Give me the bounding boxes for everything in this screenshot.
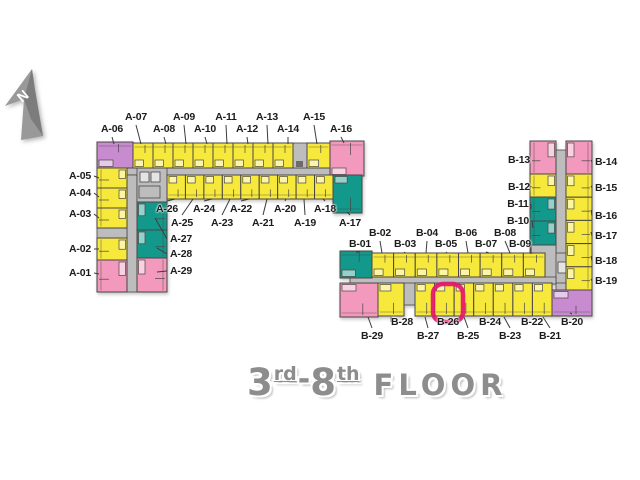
room-detail [99, 160, 113, 167]
floor-plan-screen: N A-01A-02A-03A-04A-05A-06A-07A-08A-09A-… [0, 0, 640, 480]
unit-label-b-01: B-01 [349, 238, 371, 250]
room-detail [568, 176, 575, 186]
leader-line-b-27 [425, 317, 428, 328]
room-detail [261, 177, 269, 184]
floor-from-suffix: rd [274, 363, 297, 385]
unit-label-b-05: B-05 [435, 238, 457, 250]
room-detail [476, 285, 484, 292]
room-detail [335, 177, 347, 184]
leader-line-a-23 [222, 199, 230, 215]
unit-label-a-26: A-26 [156, 203, 178, 215]
room-detail [504, 269, 513, 276]
room-detail [119, 210, 126, 218]
floor-range-dash: - [298, 362, 310, 397]
room-detail [417, 285, 425, 292]
corridor-core [404, 283, 415, 305]
unit-label-b-02: B-02 [369, 227, 391, 239]
room-detail [332, 168, 346, 175]
room-detail [534, 285, 542, 292]
shaft-icon [296, 161, 303, 167]
unit-label-a-07: A-07 [125, 111, 147, 123]
unit-label-b-20: B-20 [561, 316, 583, 328]
room-detail [380, 285, 391, 292]
leader-line-b-21 [543, 317, 550, 328]
room-detail [119, 190, 126, 198]
corridor-core [127, 175, 137, 292]
room-detail [119, 170, 126, 178]
room-detail [280, 177, 288, 184]
north-arrow: N [5, 69, 43, 140]
room-detail [461, 269, 470, 276]
floor-plan-svg: N [0, 0, 640, 480]
room-detail [342, 270, 355, 277]
unit-label-a-04: A-04 [69, 187, 91, 199]
room-detail [215, 160, 223, 167]
floor-from-number: 3 [247, 361, 273, 404]
room-detail [206, 177, 214, 184]
unit-label-b-25: B-25 [457, 330, 479, 342]
floor-to-suffix: th [337, 363, 360, 385]
leader-line-b-02 [380, 241, 382, 253]
unit-label-a-28: A-28 [170, 248, 192, 260]
room-detail [119, 262, 126, 275]
room-detail [175, 160, 183, 167]
room-detail [298, 177, 306, 184]
room-detail [568, 269, 575, 279]
unit-label-a-16: A-16 [330, 123, 352, 135]
room-detail [119, 240, 126, 249]
unit-label-a-19: A-19 [294, 217, 316, 229]
leader-line-b-06 [466, 241, 468, 253]
room-detail [548, 143, 555, 157]
unit-label-a-23: A-23 [211, 217, 233, 229]
unit-label-a-05: A-05 [69, 170, 91, 182]
unit-label-b-27: B-27 [417, 330, 439, 342]
unit-label-a-29: A-29 [170, 265, 192, 277]
unit-label-a-25: A-25 [171, 217, 193, 229]
unit-label-a-12: A-12 [236, 123, 258, 135]
room-detail [135, 160, 143, 167]
leader-line-a-09 [184, 125, 186, 144]
room-detail [548, 223, 555, 233]
room-detail [342, 285, 356, 292]
unit-label-b-17: B-17 [595, 230, 617, 242]
unit-label-a-27: A-27 [170, 233, 192, 245]
unit-label-a-02: A-02 [69, 243, 91, 255]
unit-label-b-15: B-15 [595, 182, 617, 194]
unit-label-b-06: B-06 [455, 227, 477, 239]
unit-label-b-11: B-11 [507, 198, 528, 210]
unit-label-a-21: A-21 [252, 217, 274, 229]
leader-line-a-25 [182, 199, 193, 215]
leader-line-a-13 [267, 125, 268, 144]
room-detail [224, 177, 232, 184]
unit-label-a-08: A-08 [153, 123, 175, 135]
room-detail [317, 177, 325, 184]
floor-title: 3rd-8thFLOOR [247, 361, 507, 404]
room-detail [187, 177, 195, 184]
leader-line-a-07 [136, 125, 141, 144]
unit-label-b-07: B-07 [475, 238, 497, 250]
room-detail [155, 160, 163, 167]
unit-label-a-13: A-13 [256, 111, 278, 123]
unit-label-b-16: B-16 [595, 210, 617, 222]
room-detail [495, 285, 503, 292]
floor-word: FLOOR [374, 368, 508, 402]
unit-label-b-22: B-22 [521, 316, 543, 328]
unit-label-a-01: A-01 [69, 267, 91, 279]
unit-label-b-09: B-09 [509, 238, 531, 250]
room-detail [439, 269, 448, 276]
room-detail [568, 143, 575, 157]
unit-label-a-24: A-24 [193, 203, 215, 215]
leader-line-a-19 [304, 199, 305, 215]
unit-label-b-12: B-12 [508, 181, 530, 193]
unit-label-b-24: B-24 [479, 316, 501, 328]
unit-label-b-13: B-13 [508, 154, 530, 166]
unit-label-b-19: B-19 [595, 275, 617, 287]
leader-line-a-15 [314, 125, 317, 144]
unit-label-a-22: A-22 [230, 203, 252, 215]
unit-label-a-06: A-06 [101, 123, 123, 135]
room-detail [139, 204, 146, 216]
leader-line-b-29 [368, 317, 372, 328]
elevator-icon [140, 172, 149, 182]
room-detail [568, 246, 575, 256]
room-detail [568, 222, 575, 232]
unit-label-a-20: A-20 [274, 203, 296, 215]
unit-label-b-29: B-29 [361, 330, 383, 342]
leader-line-b-03 [404, 252, 405, 253]
room-detail [169, 177, 177, 184]
unit-label-b-18: B-18 [595, 255, 617, 267]
room-detail [525, 269, 534, 276]
corridor-core [139, 186, 160, 198]
unit-label-b-23: B-23 [499, 330, 521, 342]
room-detail [568, 199, 575, 209]
room-detail [243, 177, 251, 184]
unit-label-a-17: A-17 [339, 217, 361, 229]
unit-label-a-09: A-09 [173, 111, 195, 123]
room-detail [139, 232, 146, 244]
unit-label-a-03: A-03 [69, 208, 91, 220]
room-detail [548, 176, 555, 186]
unit-label-a-11: A-11 [215, 111, 236, 123]
corridor-core [97, 228, 127, 238]
leader-line-b-25 [464, 317, 468, 328]
unit-label-b-14: B-14 [595, 156, 617, 168]
unit-label-b-21: B-21 [539, 330, 561, 342]
unit-label-a-14: A-14 [277, 123, 299, 135]
leader-line-a-11 [226, 125, 227, 144]
room-detail [235, 160, 243, 167]
unit-label-a-15: A-15 [303, 111, 325, 123]
elevator-icon [151, 172, 160, 182]
unit-label-b-26: B-26 [437, 316, 459, 328]
leader-line-b-04 [426, 241, 427, 253]
room-detail [396, 269, 405, 276]
room-detail [417, 269, 426, 276]
room-detail [309, 160, 319, 167]
room-detail [482, 269, 491, 276]
leader-line-a-21 [263, 199, 267, 215]
leader-line-b-23 [504, 317, 510, 328]
floor-to-number: 8 [310, 361, 336, 404]
room-detail [139, 260, 146, 274]
room-detail [255, 160, 263, 167]
room-detail [195, 160, 203, 167]
room-detail [515, 285, 523, 292]
leader-line-b-05 [446, 252, 447, 253]
room-detail [374, 269, 383, 276]
unit-label-a-18: A-18 [314, 203, 336, 215]
room-detail [275, 160, 283, 167]
unit-label-b-28: B-28 [391, 316, 413, 328]
unit-label-b-03: B-03 [394, 238, 416, 250]
unit-label-b-10: B-10 [507, 215, 529, 227]
room-detail [554, 292, 568, 299]
unit-label-a-10: A-10 [194, 123, 216, 135]
room-detail [548, 199, 555, 209]
